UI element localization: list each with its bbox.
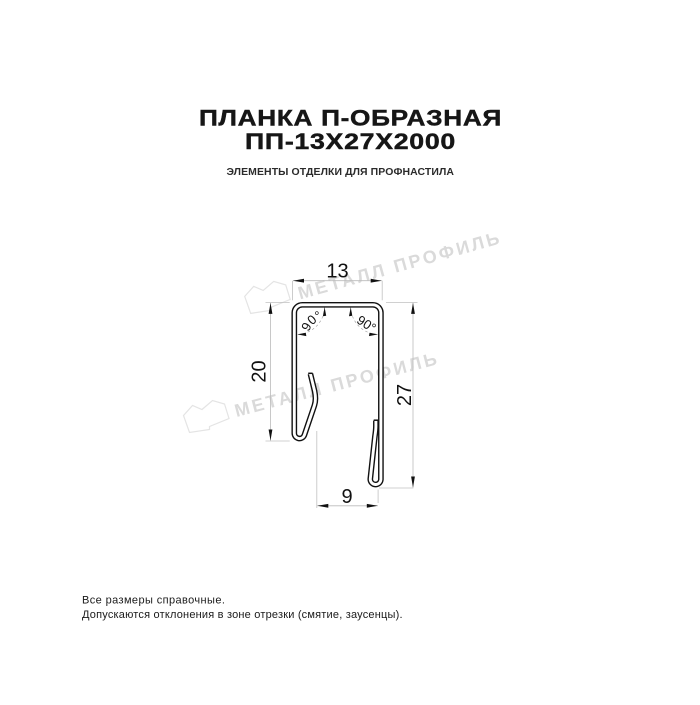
svg-text:Допускаются отклонения в зоне: Допускаются отклонения в зоне отрезки (с… xyxy=(82,609,403,621)
svg-text:ПП-13Х27Х2000: ПП-13Х27Х2000 xyxy=(245,129,456,154)
svg-text:13: 13 xyxy=(326,260,348,282)
svg-text:9: 9 xyxy=(341,486,352,508)
svg-text:27: 27 xyxy=(394,384,416,406)
svg-text:20: 20 xyxy=(249,360,271,382)
svg-text:Все размеры справочные.: Все размеры справочные. xyxy=(82,595,225,607)
svg-text:ЭЛЕМЕНТЫ ОТДЕЛКИ ДЛЯ ПРОФНАСТИ: ЭЛЕМЕНТЫ ОТДЕЛКИ ДЛЯ ПРОФНАСТИЛА xyxy=(227,166,455,178)
svg-text:ПЛАНКА П-ОБРАЗНАЯ: ПЛАНКА П-ОБРАЗНАЯ xyxy=(199,106,502,131)
